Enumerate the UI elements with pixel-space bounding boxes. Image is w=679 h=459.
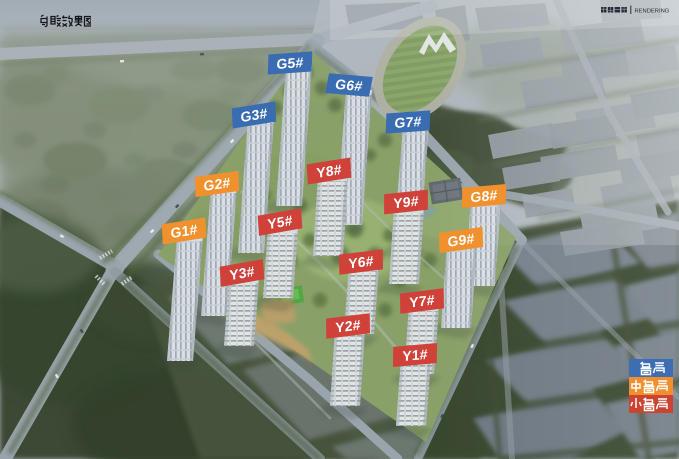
svg-text:RENDERING: RENDERING: [635, 9, 670, 15]
